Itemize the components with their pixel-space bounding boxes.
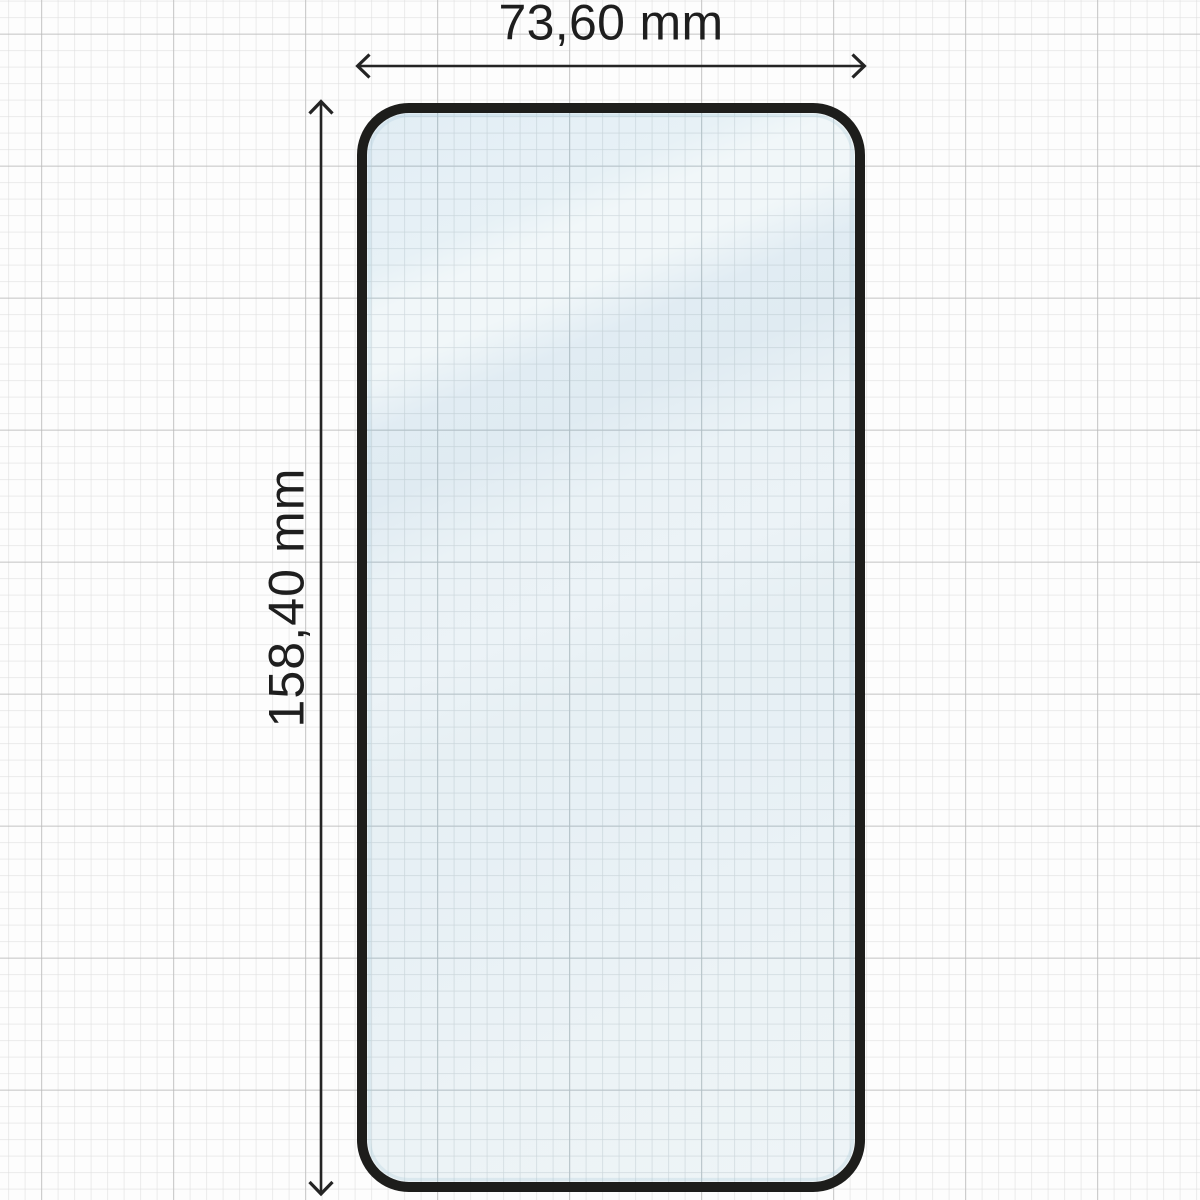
svg-text:158,40 mm: 158,40 mm xyxy=(259,467,315,727)
svg-text:73,60 mm: 73,60 mm xyxy=(498,0,723,51)
